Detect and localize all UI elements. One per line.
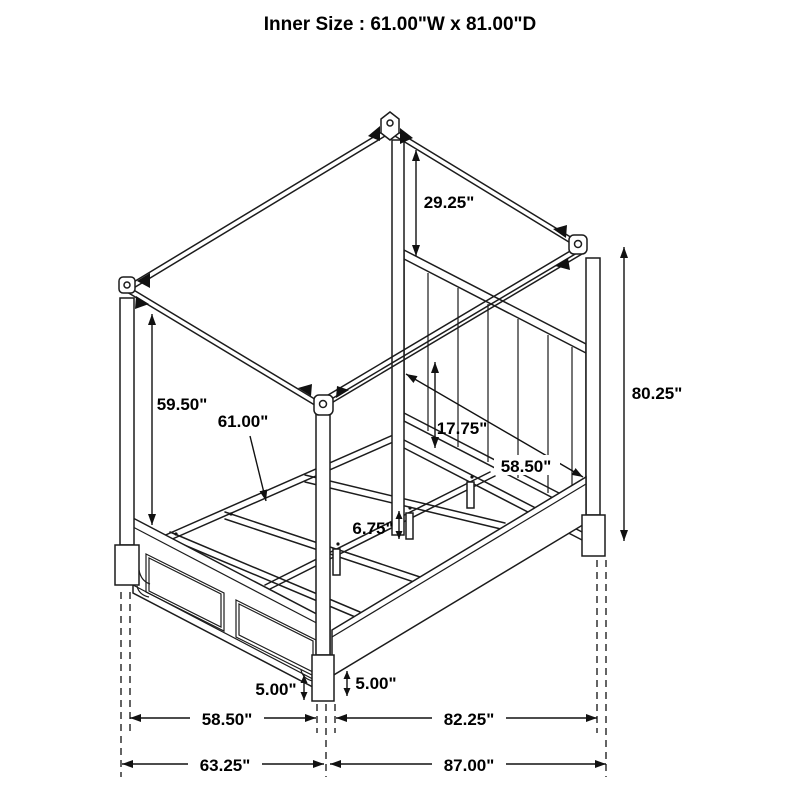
right-post (586, 258, 600, 515)
front-post (312, 414, 334, 701)
dim-overall-height: 80.25" (632, 384, 683, 403)
dim-overall-depth: 87.00" (444, 756, 495, 775)
bed-dimension-diagram: Inner Size : 61.00"W x 81.00"D (0, 0, 800, 800)
dim-canopy-drop: 29.25" (424, 193, 475, 212)
dim-overall-width: 63.25" (200, 756, 251, 775)
headboard (404, 250, 586, 515)
dim-left-clearance: 5.00" (255, 680, 296, 699)
dim-post-height: 59.50" (157, 395, 208, 414)
dim-side-rail-length: 82.25" (444, 710, 495, 729)
dim-inner-width: 61.00" (218, 412, 269, 431)
rear-post (392, 140, 404, 535)
dim-base-width: 58.50" (202, 710, 253, 729)
page-title: Inner Size : 61.00"W x 81.00"D (264, 14, 537, 35)
side-rail-front-right (332, 477, 586, 676)
dim-support-leg-height: 6.75" (352, 519, 393, 538)
right-post-foot (582, 515, 605, 556)
dim-front-clearance: 5.00" (355, 674, 396, 693)
dim-frame-width: 58.50" (501, 457, 552, 476)
dim-headboard-clearance: 17.75" (437, 419, 488, 438)
